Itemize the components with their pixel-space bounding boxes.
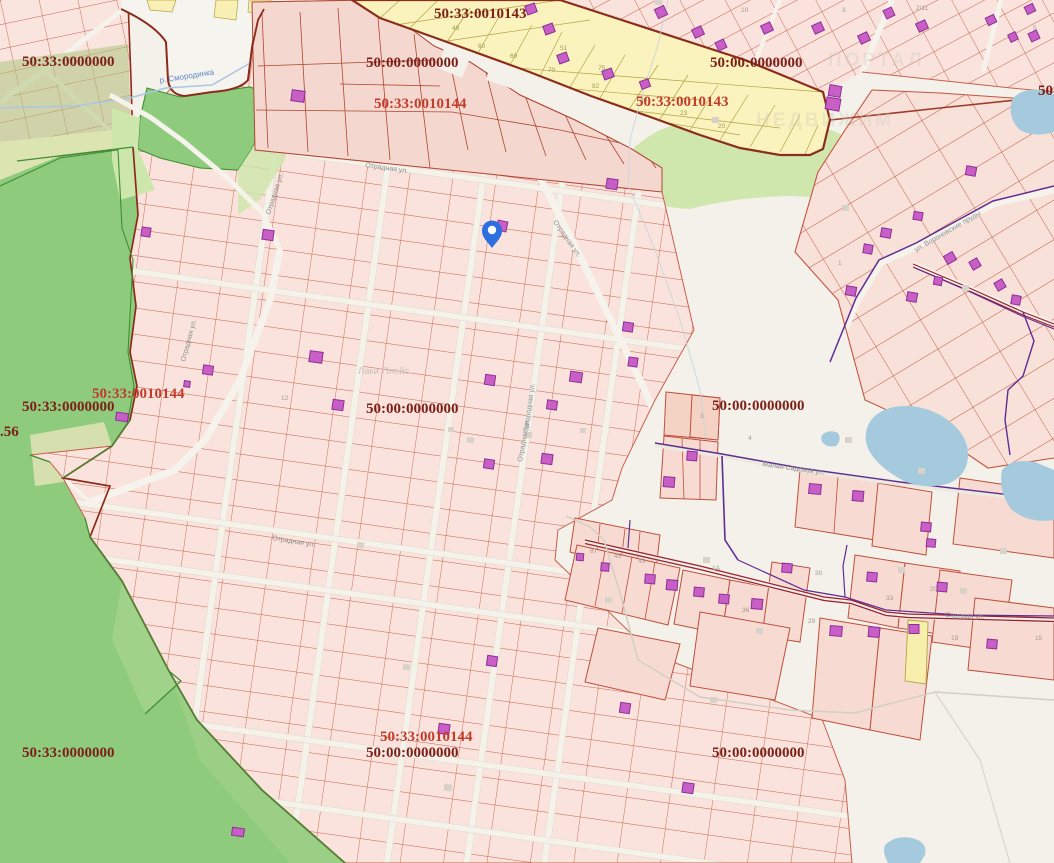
- svg-text:50:00:0000000: 50:00:0000000: [712, 398, 805, 414]
- svg-text:4: 4: [748, 435, 752, 442]
- svg-text:50:00:0000000: 50:00:0000000: [366, 55, 459, 71]
- svg-text:Лаки Плейс: Лаки Плейс: [358, 366, 410, 377]
- svg-text:87: 87: [590, 548, 598, 555]
- svg-text:2/11: 2/11: [916, 5, 929, 12]
- svg-text:20: 20: [930, 586, 938, 593]
- svg-text:50:33:0000000: 50:33:0000000: [22, 54, 115, 70]
- svg-text:33: 33: [886, 595, 894, 602]
- svg-text:.56: .56: [0, 424, 19, 440]
- svg-text:50:00:0000000: 50:00:0000000: [710, 55, 803, 71]
- svg-text:50:33:0010144: 50:33:0010144: [374, 96, 467, 112]
- svg-text:36: 36: [742, 607, 750, 614]
- svg-text:82: 82: [592, 83, 600, 90]
- svg-text:30: 30: [815, 570, 823, 577]
- svg-text:3: 3: [700, 413, 704, 420]
- svg-text:23: 23: [680, 110, 688, 117]
- svg-text:1А: 1А: [712, 565, 721, 572]
- svg-text:50:00:0000000: 50:00:0000000: [366, 401, 459, 417]
- svg-text:50:00:0000000: 50:00:0000000: [712, 745, 805, 761]
- svg-text:60: 60: [478, 43, 486, 50]
- svg-text:3: 3: [842, 7, 846, 14]
- svg-text:10: 10: [741, 7, 749, 14]
- svg-text:50:33:0010143: 50:33:0010143: [636, 94, 729, 110]
- svg-text:ПОРТАЛ: ПОРТАЛ: [828, 50, 925, 71]
- svg-text:50:00:0000000: 50:00:0000000: [366, 745, 459, 761]
- svg-text:19: 19: [951, 635, 959, 642]
- svg-text:15: 15: [1035, 635, 1043, 642]
- svg-text:50:33:0010144: 50:33:0010144: [380, 729, 473, 745]
- svg-text:50:33:0000000: 50:33:0000000: [22, 399, 115, 415]
- svg-text:51: 51: [560, 45, 568, 52]
- svg-text:69: 69: [510, 53, 518, 60]
- svg-text:29: 29: [808, 618, 816, 625]
- svg-text:1: 1: [838, 260, 842, 267]
- svg-text:12: 12: [281, 395, 289, 402]
- svg-text:43: 43: [638, 558, 646, 565]
- svg-text:50:33:0000000: 50:33:0000000: [22, 745, 115, 761]
- svg-text:70: 70: [548, 67, 556, 74]
- svg-text:5: 5: [1033, 25, 1037, 32]
- svg-text:НЕДВИЖИМ: НЕДВИЖИМ: [756, 110, 894, 131]
- svg-text:50:: 50:: [1038, 83, 1054, 99]
- svg-text:45: 45: [614, 553, 622, 560]
- svg-text:48: 48: [452, 25, 460, 32]
- svg-text:20: 20: [718, 123, 726, 130]
- svg-text:50:33:0010143: 50:33:0010143: [434, 6, 527, 22]
